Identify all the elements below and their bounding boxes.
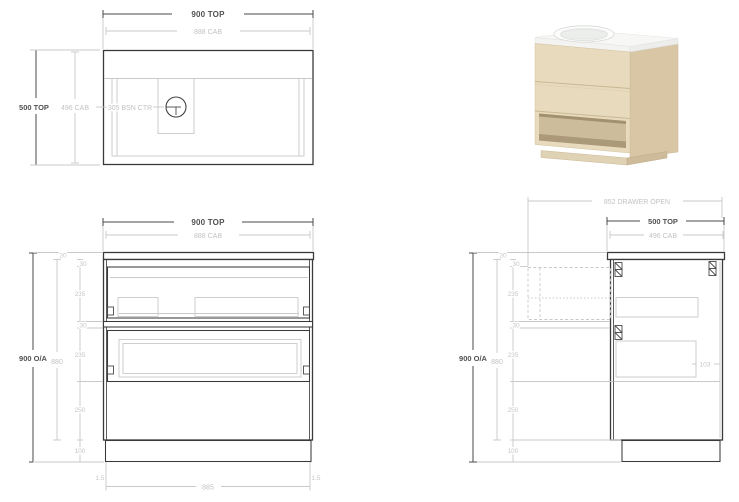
front-drawer-a-label: 235 bbox=[75, 291, 86, 298]
side-drawer-open-label: 852 DRAWER OPEN bbox=[604, 199, 670, 206]
side-depth-cab-label: 496 CAB bbox=[649, 233, 677, 240]
side-depth-top-label: 500 TOP bbox=[648, 217, 678, 226]
front-elevation: 900 TOP 888 CAB 900 O/A 20 bbox=[19, 218, 321, 492]
front-drawer-b-label: 235 bbox=[75, 352, 86, 359]
front-kick-label: 100 bbox=[75, 448, 86, 455]
front-gap-a-label: 30 bbox=[79, 261, 87, 268]
front-kick-offset-right-label: 1.5 bbox=[311, 475, 320, 482]
drawing-canvas: 900 TOP 888 CAB 500 TOP 496 CAB 305 BSN … bbox=[0, 0, 739, 502]
side-height-cab-label: 880 bbox=[491, 359, 503, 366]
front-rail bbox=[104, 322, 313, 328]
product-render bbox=[535, 26, 678, 165]
plan-view: 900 TOP 888 CAB 500 TOP 496 CAB 305 BSN … bbox=[19, 10, 313, 165]
side-elevation: 852 DRAWER OPEN 500 TOP 496 CAB bbox=[459, 197, 724, 462]
side-shelf-label: 250 bbox=[508, 407, 519, 414]
render-kickboard bbox=[541, 151, 627, 166]
side-top-thickness-label: 20 bbox=[499, 253, 507, 260]
side-benchtop bbox=[608, 253, 725, 260]
front-kickboard bbox=[106, 441, 312, 462]
plan-basin-centre-label: 305 BSN CTR bbox=[108, 105, 152, 112]
side-kickboard bbox=[622, 441, 720, 462]
front-benchtop bbox=[104, 253, 314, 260]
side-gap-b-label: 30 bbox=[512, 323, 520, 330]
spec-sheet: 900 TOP 888 CAB 500 TOP 496 CAB 305 BSN … bbox=[0, 0, 739, 502]
side-gap-a-label: 30 bbox=[512, 261, 520, 268]
side-height-oa-label: 900 O/A bbox=[459, 354, 488, 363]
side-drawer-b-label: 235 bbox=[508, 352, 519, 359]
plan-depth-top-label: 500 TOP bbox=[19, 103, 49, 112]
front-height-cab-label: 880 bbox=[51, 359, 63, 366]
plan-depth-cab-label: 496 CAB bbox=[61, 105, 89, 112]
front-kick-offset-left-label: 1.5 bbox=[95, 475, 104, 482]
render-side-panel bbox=[630, 44, 678, 158]
front-width-cab-label: 888 CAB bbox=[194, 233, 222, 240]
side-runner-gap-label: 103 bbox=[700, 362, 711, 369]
front-kick-width-label: 885 bbox=[202, 485, 214, 492]
side-drawer-a-label: 235 bbox=[508, 291, 519, 298]
plan-width-cab-label: 888 CAB bbox=[194, 29, 222, 36]
front-gap-b-label: 30 bbox=[79, 323, 87, 330]
plan-width-top-label: 900 TOP bbox=[191, 10, 225, 19]
side-kick-label: 100 bbox=[508, 448, 519, 455]
front-shelf-label: 250 bbox=[75, 407, 86, 414]
front-height-oa-label: 900 O/A bbox=[19, 354, 48, 363]
front-width-top-label: 900 TOP bbox=[191, 218, 225, 227]
front-top-thickness-label: 20 bbox=[59, 253, 67, 260]
front-drawer-1 bbox=[108, 267, 310, 318]
side-carcass bbox=[611, 260, 723, 441]
